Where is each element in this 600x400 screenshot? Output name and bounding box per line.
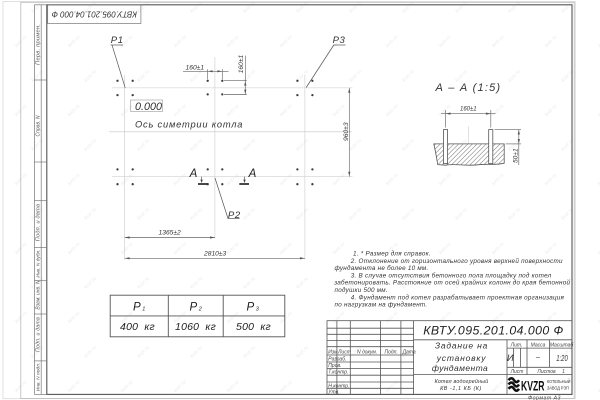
svg-text:kvzr.ru: kvzr.ru bbox=[83, 138, 98, 153]
svg-text:Листов: Листов bbox=[536, 369, 556, 375]
svg-text:КВТУ.095.201.04.000 Ф: КВТУ.095.201.04.000 Ф bbox=[51, 9, 137, 18]
svg-text:kvzr.ru: kvzr.ru bbox=[385, 310, 400, 325]
svg-text:kvzr.ru: kvzr.ru bbox=[226, 241, 241, 256]
svg-text:kvzr.ru: kvzr.ru bbox=[560, 69, 575, 84]
svg-text:kvzr.ru: kvzr.ru bbox=[544, 241, 559, 256]
svg-text:kvzr.ru: kvzr.ru bbox=[136, 207, 151, 222]
svg-text:kvzr.ru: kvzr.ru bbox=[385, 34, 400, 49]
svg-text:kvzr.ru: kvzr.ru bbox=[173, 34, 188, 49]
svg-text:Дата: Дата bbox=[402, 349, 416, 355]
svg-text:kvzr.ru: kvzr.ru bbox=[295, 345, 310, 360]
svg-text:A: A bbox=[248, 168, 257, 180]
svg-text:kvzr.ru: kvzr.ru bbox=[544, 34, 559, 49]
svg-text:ЗАВОД РЭП: ЗАВОД РЭП bbox=[547, 386, 569, 391]
svg-text:kvzr.ru: kvzr.ru bbox=[173, 241, 188, 256]
svg-text:kvzr.ru: kvzr.ru bbox=[332, 172, 347, 187]
svg-text:kvzr.ru: kvzr.ru bbox=[189, 345, 204, 360]
svg-text:kvzr.ru: kvzr.ru bbox=[67, 172, 82, 187]
svg-text:kvzr.ru: kvzr.ru bbox=[332, 310, 347, 325]
svg-text:kvzr.ru: kvzr.ru bbox=[67, 310, 82, 325]
svg-text:160±1: 160±1 bbox=[186, 65, 205, 72]
svg-text:kvzr.ru: kvzr.ru bbox=[226, 379, 241, 394]
svg-text:kvzr.ru: kvzr.ru bbox=[385, 172, 400, 187]
svg-text:kvzr.ru: kvzr.ru bbox=[401, 138, 416, 153]
svg-text:КОТЕЛЬНЫЙ: КОТЕЛЬНЫЙ bbox=[547, 377, 571, 384]
svg-text:Взам. инв. N: Взам. инв. N bbox=[36, 280, 42, 310]
svg-text:P2: P2 bbox=[228, 210, 241, 221]
svg-text:kvzr.ru: kvzr.ru bbox=[173, 103, 188, 118]
svg-text:kvzr.ru: kvzr.ru bbox=[120, 379, 135, 394]
svg-text:960±3: 960±3 bbox=[343, 122, 350, 141]
svg-text:Формат А3: Формат А3 bbox=[528, 396, 561, 400]
svg-text:по нагрузкам на фундамент.: по нагрузкам на фундамент. bbox=[335, 301, 428, 309]
svg-text:А – А (1:5): А – А (1:5) bbox=[435, 82, 502, 94]
svg-text:kvzr.ru: kvzr.ru bbox=[226, 103, 241, 118]
svg-text:Подп. и дата: Подп. и дата bbox=[36, 317, 42, 352]
svg-text:2810±3: 2810±3 bbox=[203, 251, 227, 258]
svg-text:kvzr.ru: kvzr.ru bbox=[438, 241, 453, 256]
svg-text:kvzr.ru: kvzr.ru bbox=[226, 34, 241, 49]
svg-text:2: 2 bbox=[198, 307, 202, 313]
svg-text:kvzr.ru: kvzr.ru bbox=[544, 103, 559, 118]
svg-text:kvzr.ru: kvzr.ru bbox=[242, 345, 257, 360]
svg-text:kvzr.ru: kvzr.ru bbox=[348, 69, 363, 84]
svg-text:1365±2: 1365±2 bbox=[159, 230, 182, 237]
svg-text:kvzr.ru: kvzr.ru bbox=[67, 241, 82, 256]
svg-text:kvzr.ru: kvzr.ru bbox=[491, 379, 506, 394]
svg-text:подушки 500 мм.: подушки 500 мм. bbox=[335, 286, 388, 294]
svg-text:kvzr.ru: kvzr.ru bbox=[189, 138, 204, 153]
svg-text:Т.контр.: Т.контр. bbox=[328, 370, 348, 376]
svg-text:kvzr.ru: kvzr.ru bbox=[438, 34, 453, 49]
svg-text:kvzr.ru: kvzr.ru bbox=[136, 69, 151, 84]
svg-text:kvzr.ru: kvzr.ru bbox=[67, 379, 82, 394]
svg-text:kvzr.ru: kvzr.ru bbox=[279, 379, 294, 394]
svg-text:kvzr.ru: kvzr.ru bbox=[279, 172, 294, 187]
svg-text:kvzr.ru: kvzr.ru bbox=[332, 103, 347, 118]
svg-text:50±1: 50±1 bbox=[513, 148, 520, 163]
svg-text:kvzr.ru: kvzr.ru bbox=[348, 207, 363, 222]
svg-text:kvzr.ru: kvzr.ru bbox=[295, 138, 310, 153]
svg-text:kvzr.ru: kvzr.ru bbox=[348, 138, 363, 153]
svg-text:3. В случае отсутствия бетонно: 3. В случае отсутствия бетонного пола пл… bbox=[351, 271, 552, 279]
svg-text:Масса: Масса bbox=[531, 343, 546, 349]
svg-text:kvzr.ru: kvzr.ru bbox=[83, 207, 98, 222]
svg-text:kvzr.ru: kvzr.ru bbox=[491, 103, 506, 118]
svg-text:фундамента не более 10 мм.: фундамента не более 10 мм. bbox=[335, 264, 429, 272]
svg-text:3: 3 bbox=[256, 307, 260, 313]
svg-text:kvzr.ru: kvzr.ru bbox=[30, 69, 45, 84]
svg-text:kvzr.ru: kvzr.ru bbox=[454, 207, 469, 222]
svg-text:160±1: 160±1 bbox=[238, 54, 245, 73]
svg-text:kvzr.ru: kvzr.ru bbox=[189, 207, 204, 222]
svg-text:1: 1 bbox=[562, 369, 565, 375]
svg-text:Инв. N подл.: Инв. N подл. bbox=[36, 363, 42, 392]
svg-text:kvzr.ru: kvzr.ru bbox=[491, 241, 506, 256]
svg-text:забетонировать. Расстояние от: забетонировать. Расстояние от осей крайн… bbox=[333, 279, 570, 287]
svg-text:kvzr.ru: kvzr.ru bbox=[295, 276, 310, 291]
svg-text:kvzr.ru: kvzr.ru bbox=[279, 241, 294, 256]
svg-text:kvzr.ru: kvzr.ru bbox=[120, 241, 135, 256]
svg-text:Задание на: Задание на bbox=[435, 340, 488, 350]
svg-text:0.000: 0.000 bbox=[135, 101, 162, 113]
svg-text:KVZR: KVZR bbox=[521, 378, 545, 394]
svg-text:kvzr.ru: kvzr.ru bbox=[30, 138, 45, 153]
svg-text:kvzr.ru: kvzr.ru bbox=[279, 34, 294, 49]
svg-text:kvzr.ru: kvzr.ru bbox=[507, 207, 522, 222]
svg-text:kvzr.ru: kvzr.ru bbox=[242, 207, 257, 222]
svg-text:kvzr.ru: kvzr.ru bbox=[507, 69, 522, 84]
svg-text:400 кг: 400 кг bbox=[120, 321, 155, 333]
svg-text:–: – bbox=[535, 352, 541, 361]
svg-text:Лист: Лист bbox=[337, 349, 351, 355]
svg-text:kvzr.ru: kvzr.ru bbox=[83, 345, 98, 360]
svg-text:4. Фундамент под котел разраба: 4. Фундамент под котел разрабатывает про… bbox=[351, 293, 565, 301]
svg-text:kvzr.ru: kvzr.ru bbox=[189, 276, 204, 291]
svg-text:2. Отклонение от горизонтально: 2. Отклонение от горизонтального уровня … bbox=[350, 257, 563, 265]
svg-text:фундамента: фундамента bbox=[432, 363, 488, 373]
svg-text:kvzr.ru: kvzr.ru bbox=[279, 103, 294, 118]
svg-text:1. * Размер для справок.: 1. * Размер для справок. bbox=[353, 250, 431, 258]
svg-text:P: P bbox=[133, 302, 141, 314]
svg-text:kvzr.ru: kvzr.ru bbox=[83, 276, 98, 291]
svg-text:kvzr.ru: kvzr.ru bbox=[67, 103, 82, 118]
svg-text:kvzr.ru: kvzr.ru bbox=[242, 138, 257, 153]
svg-text:kvzr.ru: kvzr.ru bbox=[438, 172, 453, 187]
svg-text:kvzr.ru: kvzr.ru bbox=[120, 103, 135, 118]
svg-text:Ось симетрии котла: Ось симетрии котла bbox=[135, 120, 243, 130]
svg-text:kvzr.ru: kvzr.ru bbox=[385, 379, 400, 394]
svg-text:kvzr.ru: kvzr.ru bbox=[226, 172, 241, 187]
svg-text:Справ. N: Справ. N bbox=[36, 115, 42, 136]
svg-text:P1: P1 bbox=[111, 35, 124, 46]
svg-text:kvzr.ru: kvzr.ru bbox=[332, 241, 347, 256]
svg-text:kvzr.ru: kvzr.ru bbox=[242, 276, 257, 291]
svg-text:kvzr.ru: kvzr.ru bbox=[136, 276, 151, 291]
svg-text:kvzr.ru: kvzr.ru bbox=[67, 34, 82, 49]
svg-text:Инв. N дубл.: Инв. N дубл. bbox=[36, 249, 42, 277]
svg-text:Масштаб: Масштаб bbox=[550, 343, 574, 349]
svg-text:kvzr.ru: kvzr.ru bbox=[544, 172, 559, 187]
svg-text:kvzr.ru: kvzr.ru bbox=[401, 207, 416, 222]
svg-text:kvzr.ru: kvzr.ru bbox=[560, 207, 575, 222]
svg-text:kvzr.ru: kvzr.ru bbox=[173, 379, 188, 394]
svg-text:КВТУ.095.201.04.000 Ф: КВТУ.095.201.04.000 Ф bbox=[423, 324, 564, 338]
svg-text:установку: установку bbox=[436, 353, 487, 363]
svg-text:КВ -1,1 КБ (К): КВ -1,1 КБ (К) bbox=[440, 386, 482, 392]
svg-text:P: P bbox=[247, 302, 255, 314]
svg-text:kvzr.ru: kvzr.ru bbox=[173, 172, 188, 187]
svg-text:500 кг: 500 кг bbox=[236, 321, 271, 333]
svg-text:kvzr.ru: kvzr.ru bbox=[83, 69, 98, 84]
svg-text:Подп. и дата: Подп. и дата bbox=[36, 204, 42, 241]
svg-text:kvzr.ru: kvzr.ru bbox=[491, 34, 506, 49]
svg-text:kvzr.ru: kvzr.ru bbox=[560, 138, 575, 153]
svg-text:160±1: 160±1 bbox=[460, 107, 477, 113]
svg-text:kvzr.ru: kvzr.ru bbox=[279, 310, 294, 325]
svg-text:kvzr.ru: kvzr.ru bbox=[295, 207, 310, 222]
svg-text:Пров.: Пров. bbox=[328, 363, 341, 369]
svg-text:1:20: 1:20 bbox=[556, 353, 568, 363]
svg-text:Котел водогрейный: Котел водогрейный bbox=[435, 378, 489, 385]
svg-text:N докум.: N докум. bbox=[357, 349, 377, 355]
svg-text:Лит.: Лит. bbox=[510, 343, 523, 349]
svg-text:Лист: Лист bbox=[510, 369, 524, 375]
svg-text:kvzr.ru: kvzr.ru bbox=[136, 345, 151, 360]
svg-text:Перв. примен.: Перв. примен. bbox=[36, 24, 42, 65]
svg-text:И: И bbox=[507, 353, 514, 364]
svg-text:Утв.: Утв. bbox=[328, 389, 339, 395]
svg-text:A: A bbox=[189, 168, 198, 180]
svg-text:kvzr.ru: kvzr.ru bbox=[385, 103, 400, 118]
svg-text:kvzr.ru: kvzr.ru bbox=[136, 138, 151, 153]
svg-text:P3: P3 bbox=[333, 35, 346, 46]
svg-text:kvzr.ru: kvzr.ru bbox=[491, 172, 506, 187]
svg-text:Разраб.: Разраб. bbox=[328, 356, 346, 362]
svg-text:P: P bbox=[190, 302, 198, 314]
svg-text:kvzr.ru: kvzr.ru bbox=[438, 103, 453, 118]
svg-text:1060 кг: 1060 кг bbox=[175, 321, 216, 333]
svg-text:kvzr.ru: kvzr.ru bbox=[401, 69, 416, 84]
svg-text:Подп.: Подп. bbox=[385, 349, 398, 355]
svg-text:1: 1 bbox=[142, 307, 145, 313]
